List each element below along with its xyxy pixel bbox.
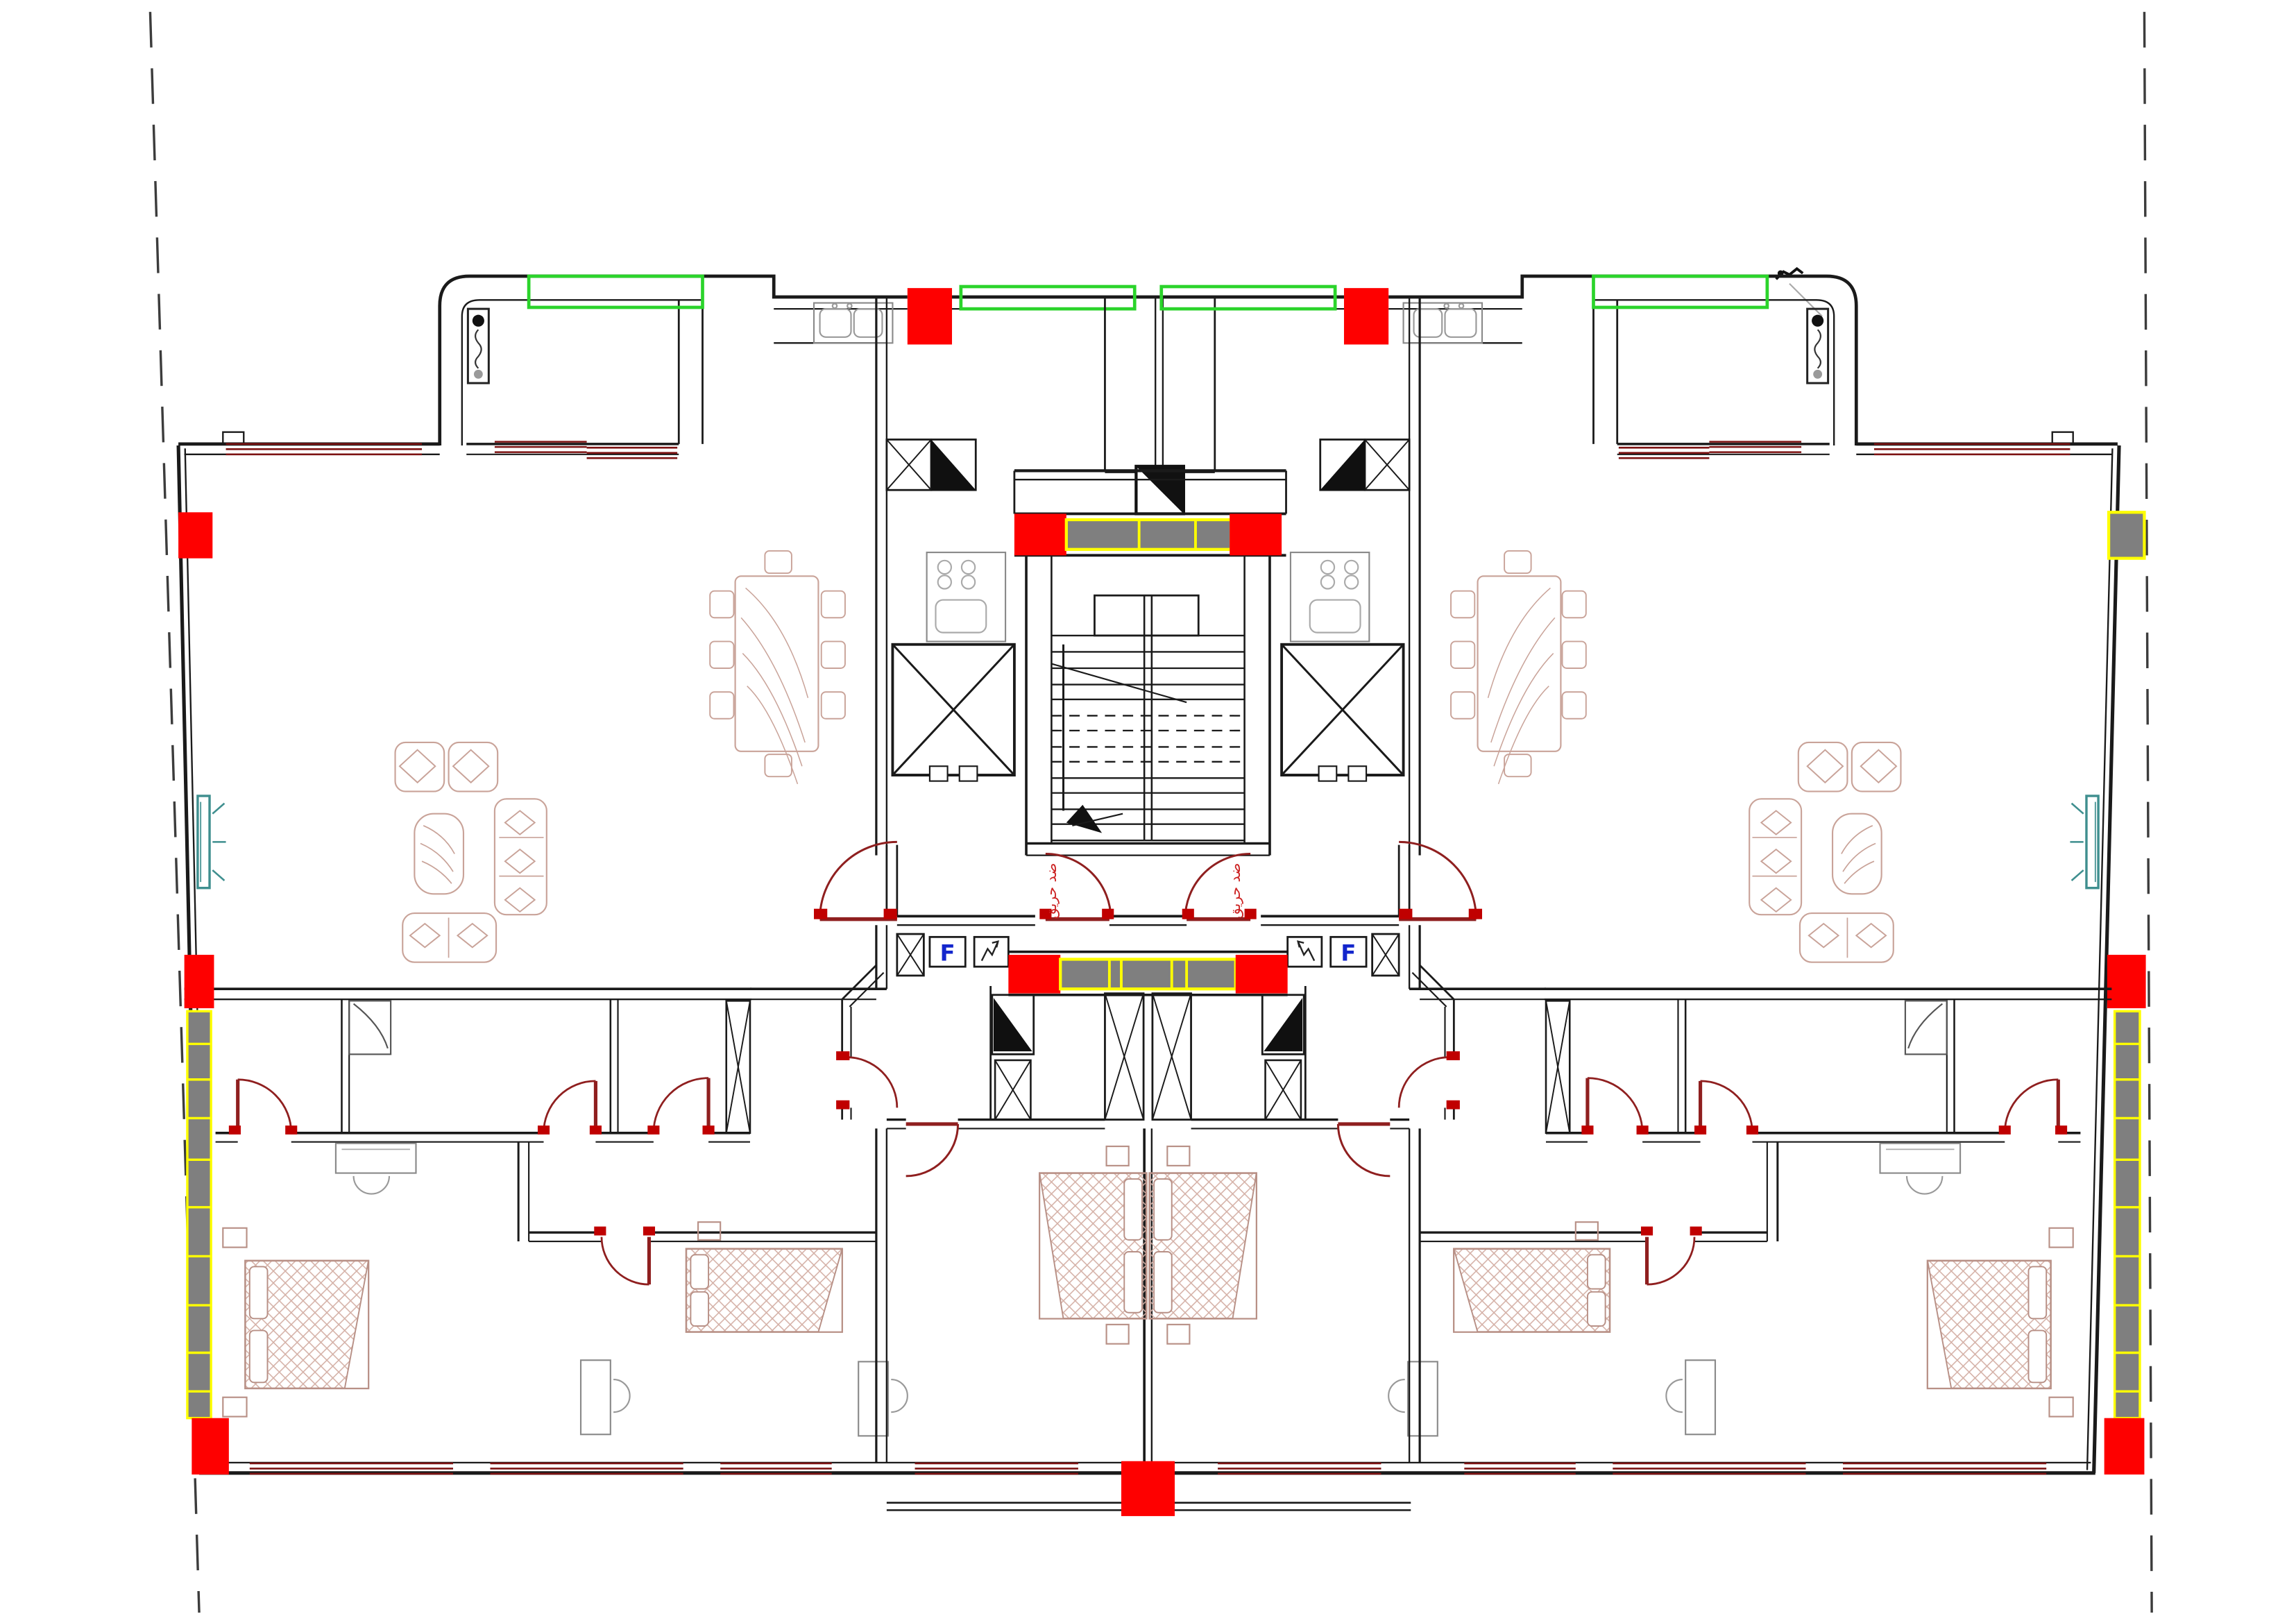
svg-text:F: F: [1341, 940, 1356, 967]
door-jamb-mark: [1447, 1101, 1460, 1110]
svg-text:ضد حريق: ضد حريق: [1043, 863, 1060, 919]
svg-text:ضد حريق: ضد حريق: [1227, 863, 1243, 919]
floor-plan-canvas: FFضد حريقضد حريق: [0, 0, 2296, 1623]
drawing-area: FFضد حريقضد حريق: [0, 0, 2296, 1623]
page: FFضد حريقضد حريق: [0, 0, 2296, 1623]
door-jamb-mark: [1399, 909, 1412, 919]
shear-wall-west: [187, 1011, 211, 1418]
elevator-door-jamb: [1319, 766, 1337, 781]
column-bottom-center: [1121, 1461, 1175, 1516]
door-jamb-mark: [1999, 1125, 2011, 1135]
laundry-drain-icon: [1813, 370, 1822, 379]
door-jamb-mark: [1641, 1227, 1653, 1236]
door-jamb-mark: [229, 1125, 241, 1135]
column-top-kitchen: [1344, 288, 1388, 344]
door-jamb-mark: [836, 1051, 849, 1060]
bed-second: [1454, 1249, 1610, 1332]
column-east-lower: [2104, 1418, 2145, 1475]
door-jamb-mark: [590, 1125, 602, 1135]
door-jamb-mark: [814, 909, 827, 919]
door-jamb-mark: [1469, 909, 1482, 919]
door-jamb-mark: [884, 909, 897, 919]
stair-landing: [1094, 595, 1198, 636]
door-jamb-mark: [2055, 1125, 2067, 1135]
f-label-left: F: [940, 940, 955, 967]
fire-door-label-right: ضد حريق: [1227, 863, 1243, 919]
shear-wall-lower: [1060, 959, 1236, 989]
elevator-door-jamb: [960, 766, 978, 781]
elevator-door-jamb: [930, 766, 948, 781]
column-shear-upper: [1014, 513, 1066, 555]
door-jamb-mark: [703, 1125, 715, 1135]
laundry-drain-icon: [474, 370, 483, 379]
bed-second: [686, 1249, 842, 1332]
shear-wall-upper: [1066, 520, 1232, 550]
bed-master-center: [1039, 1173, 1146, 1319]
bed-master-wing: [1928, 1261, 2051, 1388]
laundry-drum-icon: [1812, 315, 1823, 327]
svg-text:F: F: [940, 940, 955, 967]
shear-block-east-upper: [2109, 512, 2144, 558]
bed-master-center: [1150, 1173, 1257, 1319]
door-jamb-mark: [643, 1227, 655, 1236]
column-shear-upper: [1230, 513, 1282, 555]
door-jamb-mark: [1746, 1125, 1758, 1135]
door-jamb-mark: [836, 1101, 849, 1110]
shear-wall-east: [2115, 1011, 2140, 1418]
door-jamb-mark: [1690, 1227, 1702, 1236]
door-jamb-mark: [1581, 1125, 1593, 1135]
column-west-lower: [192, 1418, 228, 1475]
door-jamb-mark: [594, 1227, 606, 1236]
door-jamb-mark: [647, 1125, 659, 1135]
door-jamb-mark: [285, 1125, 297, 1135]
column-top-kitchen: [908, 288, 952, 344]
f-label-right: F: [1341, 940, 1356, 967]
door-jamb-mark: [1102, 909, 1114, 919]
elevator-door-jamb: [1348, 766, 1366, 781]
laundry-drum-icon: [473, 315, 484, 327]
door-jamb-mark: [1447, 1051, 1460, 1060]
door-jamb-mark: [1637, 1125, 1649, 1135]
column-shear-lower: [1236, 955, 1288, 994]
column-east-mid: [2107, 955, 2146, 1008]
column-west-upper: [178, 512, 212, 558]
column-west-mid: [185, 955, 214, 1008]
fire-door-label-left: ضد حريق: [1043, 863, 1060, 919]
door-jamb-mark: [1694, 1125, 1706, 1135]
door-jamb-mark: [1245, 909, 1257, 919]
column-shear-lower: [1008, 955, 1060, 994]
door-jamb-mark: [538, 1125, 550, 1135]
bed-master-wing: [245, 1261, 368, 1388]
door-jamb-mark: [1182, 909, 1194, 919]
